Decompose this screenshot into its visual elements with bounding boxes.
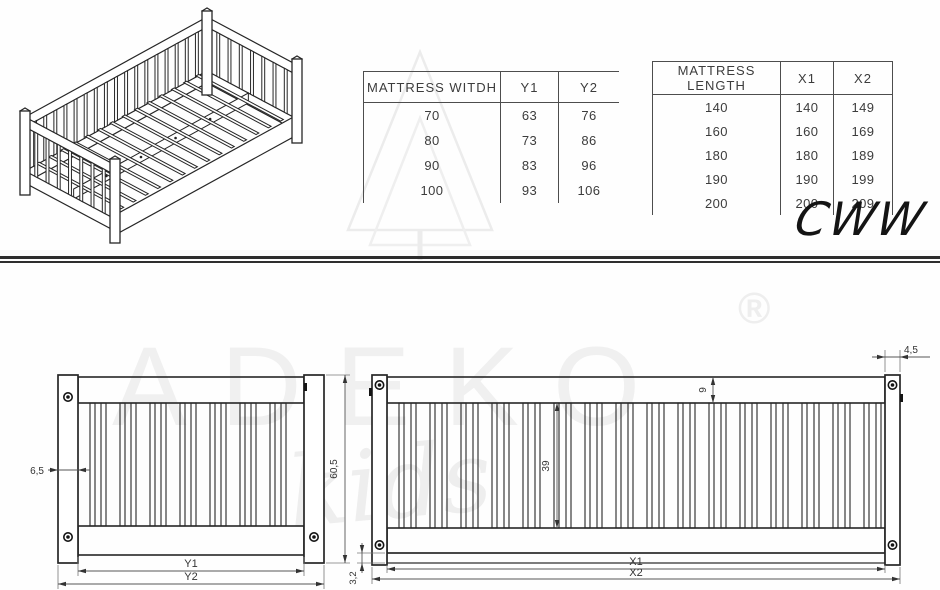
section-divider <box>0 256 940 263</box>
table-cell: 96 <box>559 153 620 178</box>
table-row: 180180189 <box>653 143 893 167</box>
table-row: 10093106 <box>364 178 620 203</box>
dimension-label: 60,5 <box>329 459 340 479</box>
isometric-bed-drawing <box>0 0 340 256</box>
dimension-label: 39 <box>541 460 552 472</box>
dimension-label: Y2 <box>184 571 197 583</box>
technical-drawing-sheet: ADEKO ® kids MATTRESS WITDHY1Y2706376807… <box>0 0 940 590</box>
column-header: MATTRESS WITDH <box>364 72 501 103</box>
table-cell: 199 <box>834 167 893 191</box>
table-row: 190190199 <box>653 167 893 191</box>
product-code: CWW <box>790 192 940 246</box>
table-cell: 189 <box>834 143 893 167</box>
table-row: 908396 <box>364 153 620 178</box>
table-cell: 106 <box>559 178 620 203</box>
table-cell: 200 <box>653 191 781 215</box>
table-header-row: MATTRESS WITDHY1Y2 <box>364 72 620 103</box>
table-cell: 180 <box>653 143 781 167</box>
mattress-width-table: MATTRESS WITDHY1Y27063768073869083961009… <box>363 71 619 203</box>
table-cell: 100 <box>364 178 501 203</box>
table-cell: 180 <box>781 143 834 167</box>
table-row: 140140149 <box>653 95 893 120</box>
column-header: X1 <box>781 62 834 95</box>
table-cell: 80 <box>364 128 501 153</box>
table-cell: 149 <box>834 95 893 120</box>
table-row: 807386 <box>364 128 620 153</box>
table-cell: 190 <box>653 167 781 191</box>
column-header: Y2 <box>559 72 620 103</box>
table-cell: 63 <box>501 103 559 129</box>
dimension-label: 9 <box>698 387 709 393</box>
table-cell: 73 <box>501 128 559 153</box>
table-row: 160160169 <box>653 119 893 143</box>
table-cell: 70 <box>364 103 501 129</box>
dimension-label: 3,2 <box>348 571 359 584</box>
table-header-row: MATTRESS LENGTHX1X2 <box>653 62 893 95</box>
table-cell: 169 <box>834 119 893 143</box>
table-cell: 160 <box>653 119 781 143</box>
dimension-label: 4,5 <box>904 345 918 356</box>
dimension-label: Y1 <box>184 558 197 570</box>
table-cell: 140 <box>781 95 834 120</box>
column-header: Y1 <box>501 72 559 103</box>
table-cell: 190 <box>781 167 834 191</box>
column-header: MATTRESS LENGTH <box>653 62 781 95</box>
table-cell: 140 <box>653 95 781 120</box>
dimension-label: X2 <box>629 567 642 579</box>
orthographic-views-drawing: 6,560,5Y1Y24,59393,2X1X2 <box>0 268 940 590</box>
dimension-label: 6,5 <box>30 466 44 477</box>
column-header: X2 <box>834 62 893 95</box>
table-cell: 93 <box>501 178 559 203</box>
table-cell: 83 <box>501 153 559 178</box>
table-cell: 76 <box>559 103 620 129</box>
table-cell: 90 <box>364 153 501 178</box>
table-row: 706376 <box>364 103 620 129</box>
table-cell: 86 <box>559 128 620 153</box>
table-cell: 160 <box>781 119 834 143</box>
